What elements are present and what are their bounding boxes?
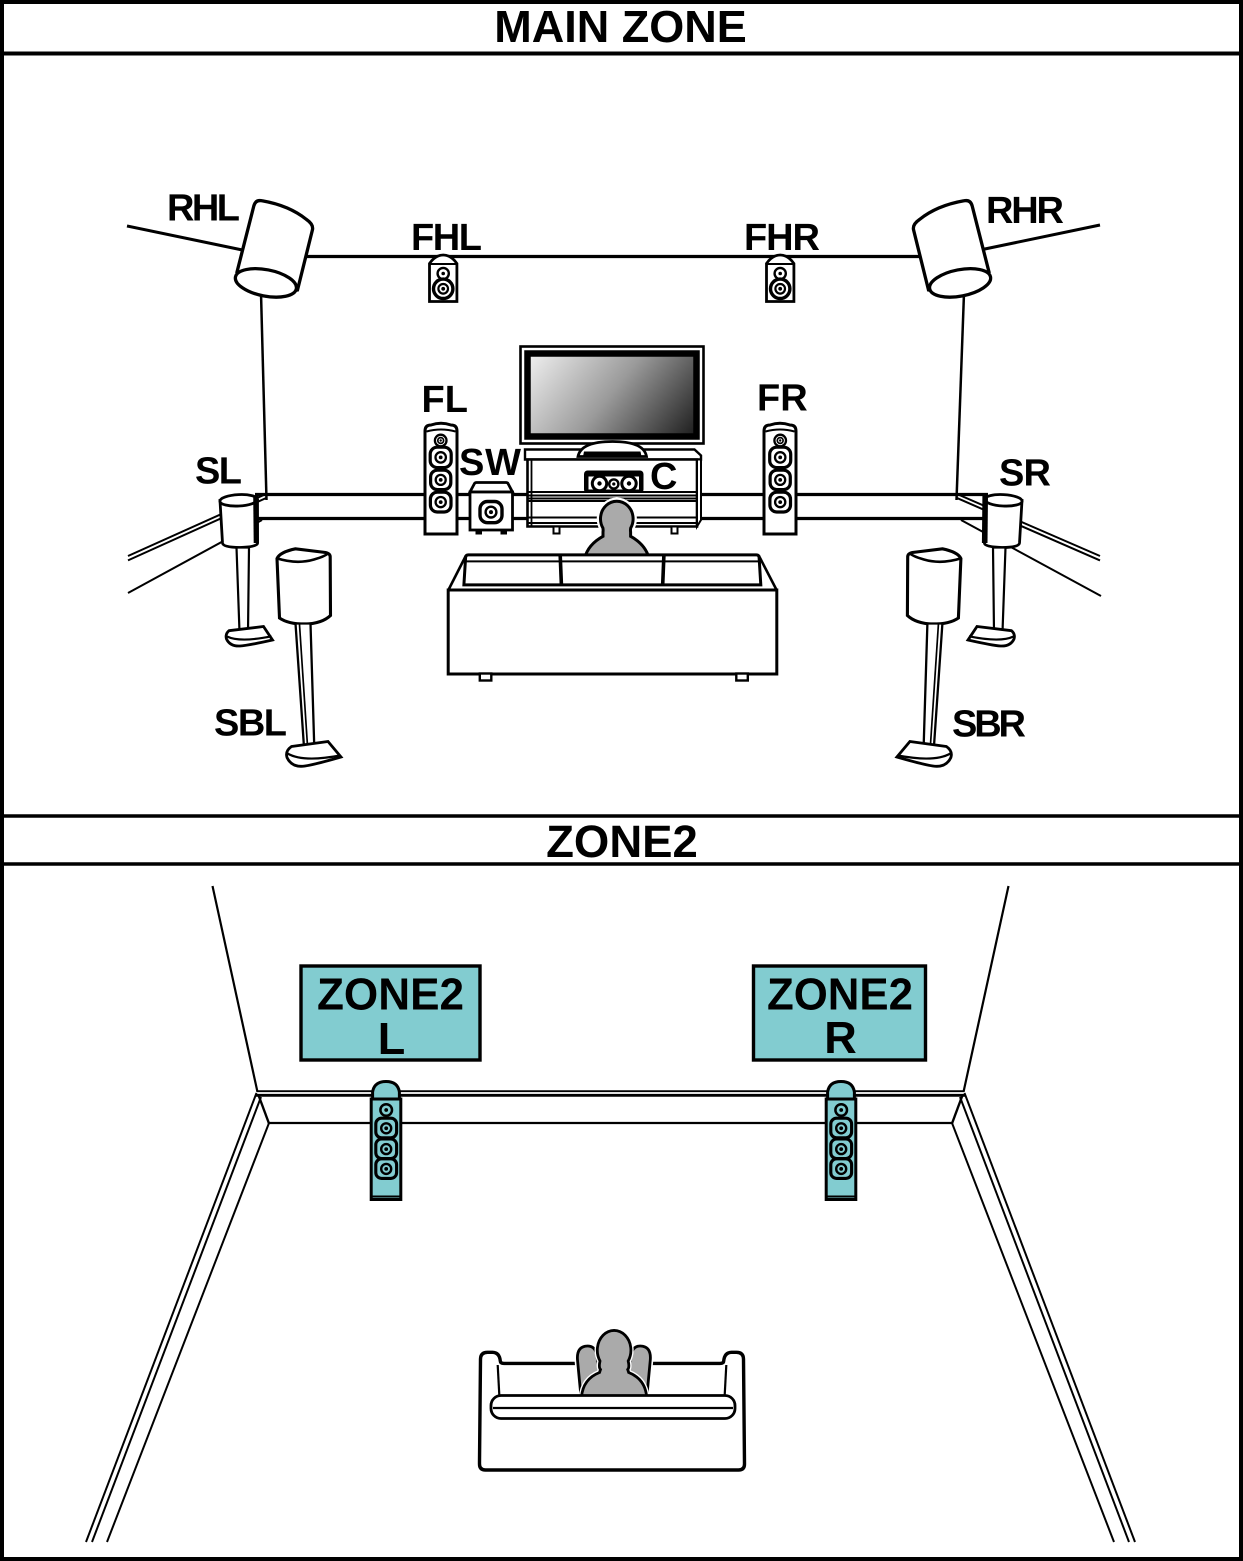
svg-text:C: C [650,456,677,498]
svg-text:SBR: SBR [952,704,1026,746]
svg-text:FL: FL [422,379,468,421]
svg-text:FR: FR [757,377,808,419]
svg-text:SL: SL [195,450,242,492]
svg-text:SR: SR [999,453,1051,495]
svg-text:SBL: SBL [214,702,287,744]
svg-text:SW: SW [459,442,521,484]
svg-text:FHR: FHR [744,217,820,259]
svg-text:ZONE2: ZONE2 [317,969,464,1020]
svg-text:R: R [824,1012,857,1063]
svg-text:RHR: RHR [986,190,1064,232]
svg-text:ZONE2: ZONE2 [546,816,698,867]
svg-text:RHL: RHL [167,188,240,230]
svg-text:L: L [378,1013,406,1064]
svg-text:MAIN ZONE: MAIN ZONE [494,1,747,52]
svg-text:FHL: FHL [411,217,482,259]
